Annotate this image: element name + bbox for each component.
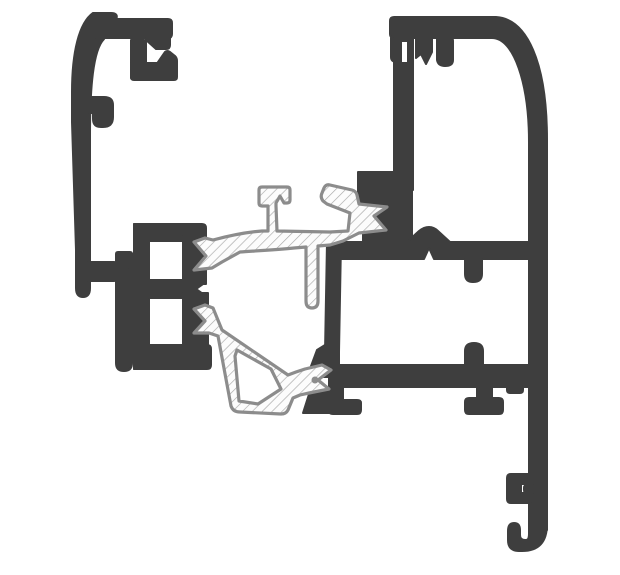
- gasket-stud: [312, 377, 319, 384]
- profile-cross-section-drawing: [0, 0, 620, 575]
- cover-side-hook: [89, 97, 113, 127]
- sash-stem-slit: [402, 42, 407, 62]
- profile-cross-section-canvas: [0, 0, 620, 575]
- cover-top-arm: [96, 19, 172, 38]
- clip-bottom-arm: [134, 345, 211, 369]
- box-inner-tooth-top: [465, 259, 482, 282]
- clip-vertical-strip: [116, 252, 132, 371]
- box-bottom-nub: [507, 384, 523, 393]
- box-left-wall: [325, 242, 341, 352]
- sash-tooth-straight: [437, 38, 453, 66]
- sash-wall-nub: [524, 485, 533, 493]
- cover-bottom-foot: [88, 262, 117, 281]
